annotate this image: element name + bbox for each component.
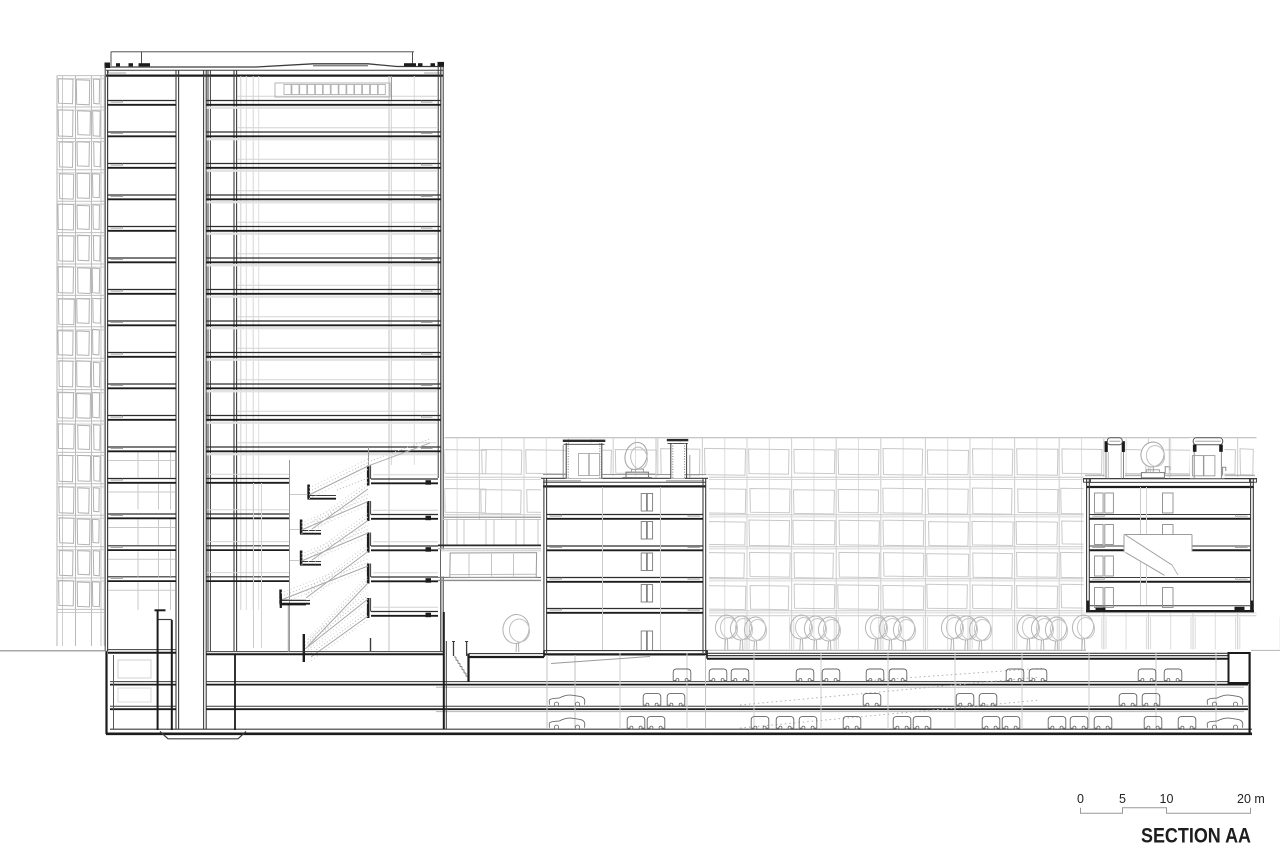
svg-text:5: 5 — [1119, 792, 1126, 806]
svg-text:20 m: 20 m — [1237, 792, 1265, 806]
svg-text:10: 10 — [1160, 792, 1174, 806]
svg-text:SECTION AA: SECTION AA — [1141, 825, 1251, 848]
svg-text:0: 0 — [1077, 792, 1084, 806]
